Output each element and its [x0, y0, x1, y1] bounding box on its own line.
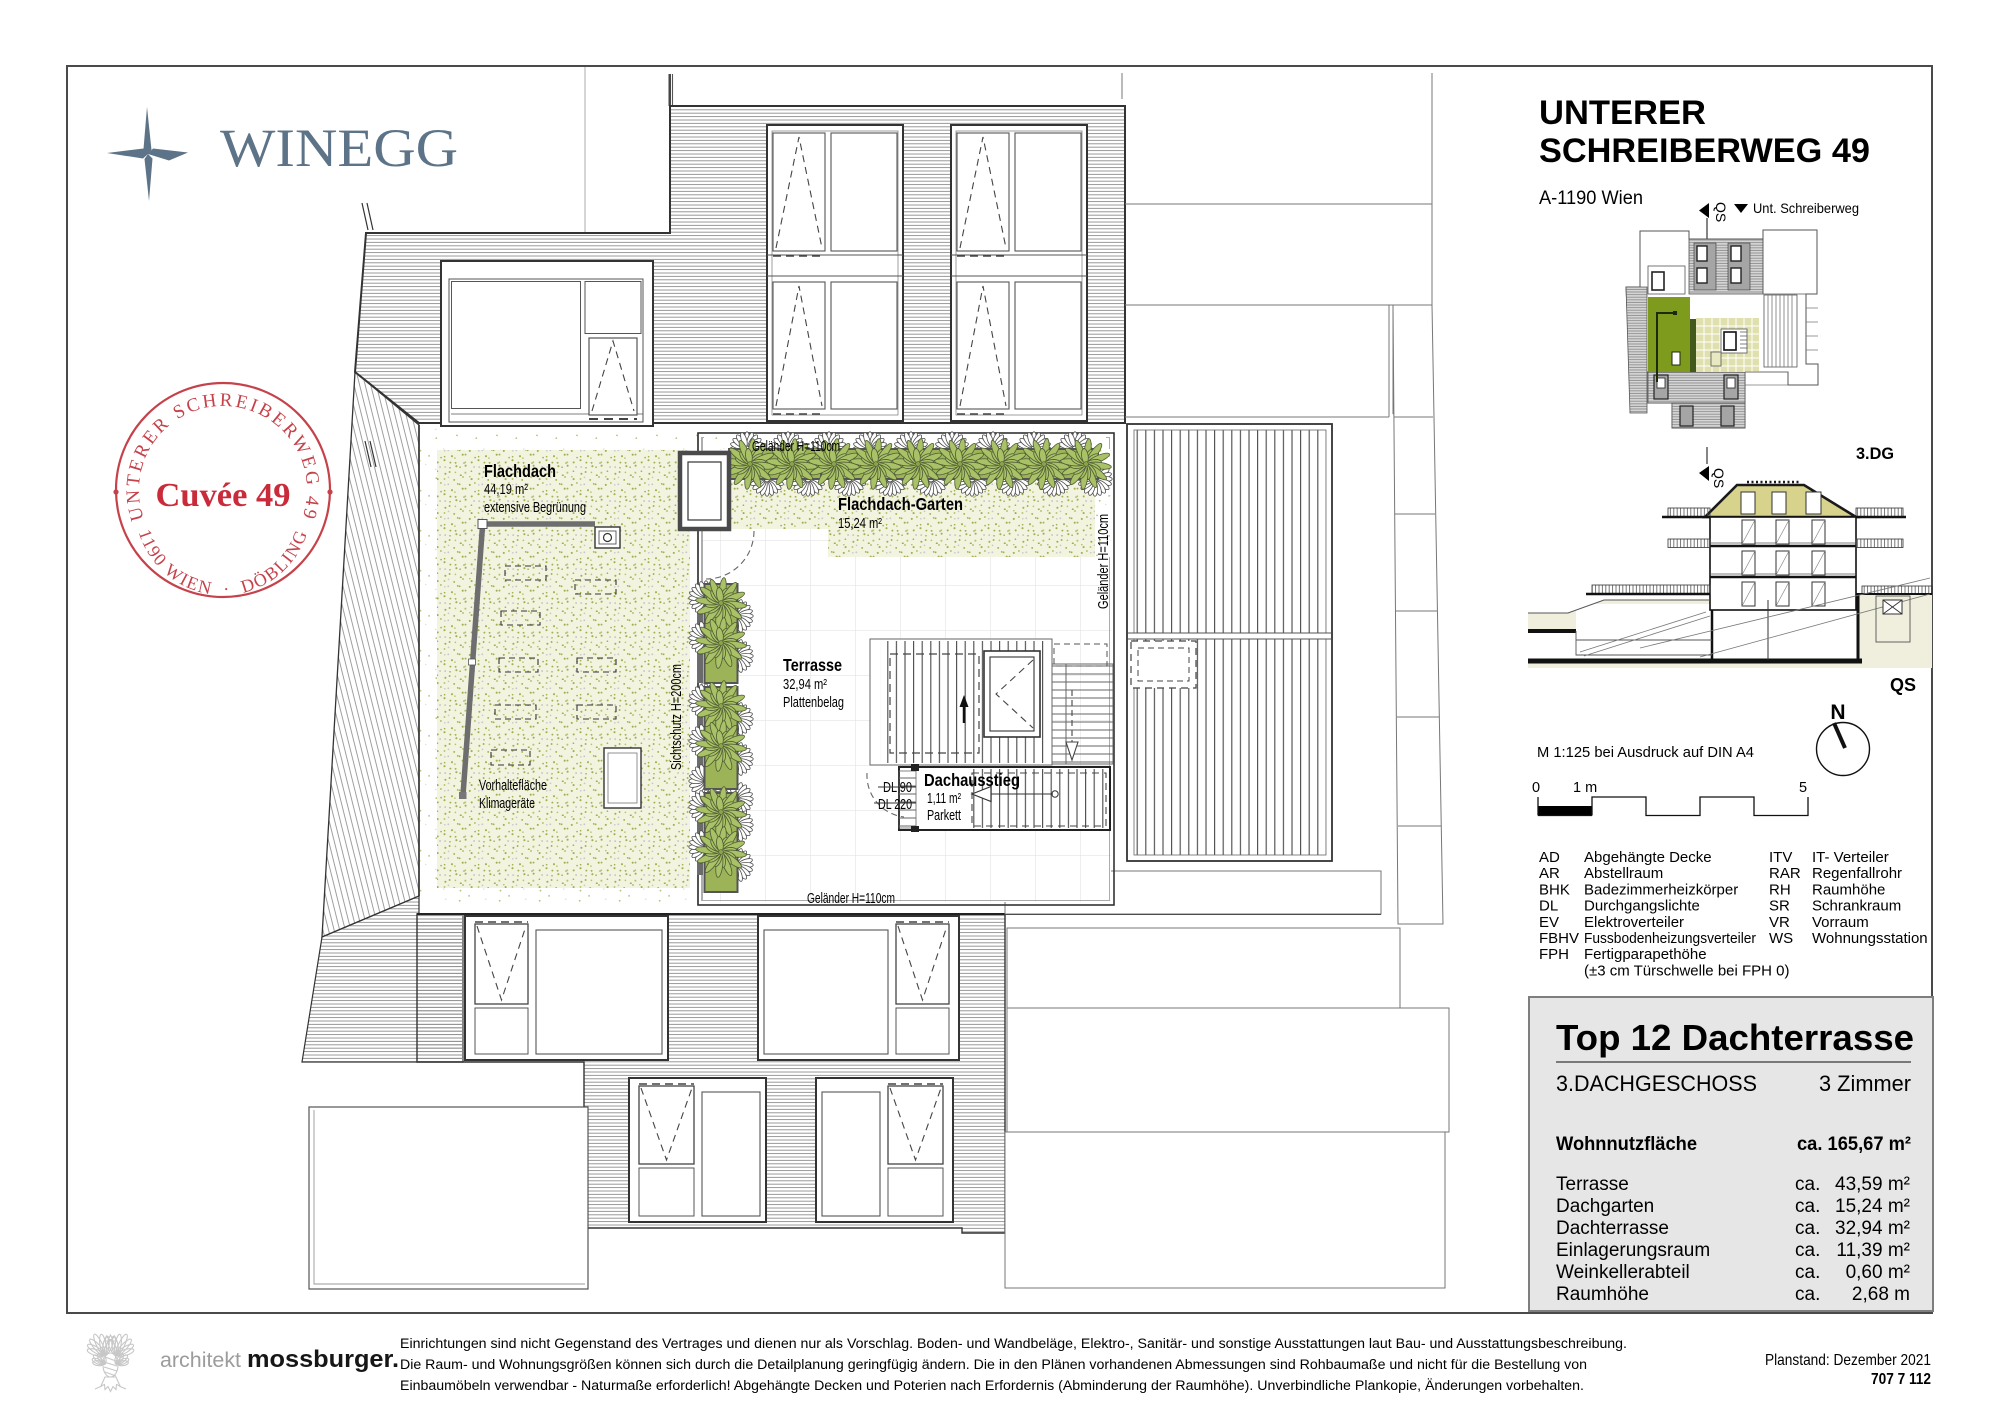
svg-text:Planstand: Dezember 2021: Planstand: Dezember 2021	[1765, 1352, 1931, 1369]
svg-text:Terrasse: Terrasse	[783, 655, 842, 675]
svg-text:Durchgangslichte: Durchgangslichte	[1584, 898, 1700, 915]
svg-text:Regenfallrohr: Regenfallrohr	[1812, 865, 1902, 882]
svg-text:Dachausstieg: Dachausstieg	[924, 770, 1020, 790]
svg-text:Schrankraum: Schrankraum	[1812, 898, 1901, 915]
svg-text:43,59 m²: 43,59 m²	[1835, 1174, 1910, 1195]
svg-text:1,11 m²: 1,11 m²	[927, 791, 961, 807]
svg-text:Fussbodenheizungsverteiler: Fussbodenheizungsverteiler	[1584, 930, 1756, 947]
svg-text:AD: AD	[1539, 849, 1560, 866]
svg-text:44,19 m²: 44,19 m²	[484, 482, 528, 498]
svg-text:mossburger.: mossburger.	[247, 1346, 399, 1373]
svg-text:SCHREIBERWEG 49: SCHREIBERWEG 49	[1539, 132, 1870, 170]
svg-text:EV: EV	[1539, 914, 1559, 931]
svg-text:BHK: BHK	[1539, 881, 1570, 898]
svg-text:QS: QS	[1890, 675, 1916, 695]
svg-text:3 Zimmer: 3 Zimmer	[1819, 1071, 1911, 1096]
svg-text:Abstellraum: Abstellraum	[1584, 865, 1663, 882]
svg-text:Sichtschutz H=200cm: Sichtschutz H=200cm	[669, 664, 685, 770]
svg-text:Flachdach: Flachdach	[484, 461, 556, 481]
svg-text:FBHV: FBHV	[1539, 930, 1579, 947]
svg-text:Top 12 Dachterrasse: Top 12 Dachterrasse	[1556, 1017, 1914, 1058]
svg-text:ca.: ca.	[1795, 1240, 1820, 1261]
svg-text:Einlagerungsraum: Einlagerungsraum	[1556, 1240, 1710, 1261]
svg-text:QS: QS	[1711, 468, 1727, 488]
svg-text:32,94 m²: 32,94 m²	[783, 677, 827, 693]
svg-text:Elektroverteiler: Elektroverteiler	[1584, 914, 1684, 931]
svg-text:UNTERER: UNTERER	[1539, 94, 1706, 132]
svg-text:SR: SR	[1769, 898, 1790, 915]
svg-text:(±3 cm Türschwelle bei FPH 0): (±3 cm Türschwelle bei FPH 0)	[1584, 962, 1790, 979]
svg-text:M 1:125 bei Ausdruck auf DIN A: M 1:125 bei Ausdruck auf DIN A4	[1537, 744, 1754, 761]
svg-text:5: 5	[1799, 780, 1807, 796]
svg-text:Weinkellerabteil: Weinkellerabteil	[1556, 1262, 1690, 1283]
svg-text:Dachgarten: Dachgarten	[1556, 1196, 1654, 1217]
svg-text:ITV: ITV	[1769, 849, 1792, 866]
svg-text:Raumhöhe: Raumhöhe	[1812, 881, 1885, 898]
svg-text:2,68 m: 2,68 m	[1852, 1284, 1910, 1305]
svg-text:ca. 165,67 m²: ca. 165,67 m²	[1797, 1134, 1911, 1155]
svg-text:0,60 m²: 0,60 m²	[1846, 1262, 1910, 1283]
svg-text:15,24 m²: 15,24 m²	[1835, 1196, 1910, 1217]
svg-text:Vorraum: Vorraum	[1812, 914, 1869, 931]
svg-text:WS: WS	[1769, 930, 1793, 947]
svg-text:Unt. Schreiberweg: Unt. Schreiberweg	[1753, 200, 1859, 216]
svg-text:Dachterrasse: Dachterrasse	[1556, 1218, 1669, 1239]
svg-text:Vorhaltefläche: Vorhaltefläche	[479, 778, 547, 794]
svg-text:IT- Verteiler: IT- Verteiler	[1812, 849, 1889, 866]
svg-text:3.DG: 3.DG	[1856, 444, 1894, 463]
svg-text:DL 220: DL 220	[878, 797, 912, 813]
svg-text:A-1190 Wien: A-1190 Wien	[1539, 188, 1643, 209]
svg-text:N: N	[1830, 701, 1845, 724]
svg-text:DL 90: DL 90	[883, 780, 912, 796]
svg-text:15,24 m²: 15,24 m²	[838, 516, 882, 532]
svg-text:RH: RH	[1769, 881, 1791, 898]
svg-text:Abgehängte Decke: Abgehängte Decke	[1584, 849, 1712, 866]
svg-text:707 7 112: 707 7 112	[1871, 1371, 1931, 1388]
svg-text:Geländer H=110cm: Geländer H=110cm	[752, 439, 840, 455]
svg-text:Klimageräte: Klimageräte	[479, 796, 535, 812]
svg-text:Geländer H=110cm: Geländer H=110cm	[1096, 514, 1112, 609]
svg-text:3.DACHGESCHOSS: 3.DACHGESCHOSS	[1556, 1071, 1757, 1096]
svg-text:Einrichtungen sind nicht Gegen: Einrichtungen sind nicht Gegenstand des …	[400, 1336, 1627, 1352]
svg-text:ca.: ca.	[1795, 1196, 1820, 1217]
svg-text:Geländer H=110cm: Geländer H=110cm	[807, 891, 895, 907]
svg-text:FPH: FPH	[1539, 946, 1569, 963]
svg-text:QS: QS	[1713, 202, 1729, 222]
svg-text:1 m: 1 m	[1573, 780, 1597, 796]
svg-text:DL: DL	[1539, 898, 1558, 915]
svg-text:Wohnnutzfläche: Wohnnutzfläche	[1556, 1134, 1697, 1155]
svg-text:Die Raum- und Wohnungsgrößen k: Die Raum- und Wohnungsgrößen können sich…	[400, 1357, 1587, 1373]
svg-text:Einbaumöbeln verwendbar - Natu: Einbaumöbeln verwendbar - Naturmaße erfo…	[400, 1377, 1584, 1394]
svg-text:ca.: ca.	[1795, 1284, 1820, 1305]
svg-text:32,94 m²: 32,94 m²	[1835, 1218, 1910, 1239]
svg-text:11,39 m²: 11,39 m²	[1836, 1240, 1910, 1261]
svg-text:ca.: ca.	[1795, 1218, 1820, 1239]
svg-text:VR: VR	[1769, 914, 1790, 931]
svg-text:Raumhöhe: Raumhöhe	[1556, 1284, 1649, 1305]
svg-text:Badezimmerheizkörper: Badezimmerheizkörper	[1584, 881, 1738, 898]
svg-text:Cuvée 49: Cuvée 49	[156, 477, 291, 514]
svg-text:Wohnungsstation: Wohnungsstation	[1812, 930, 1928, 947]
svg-text:Parkett: Parkett	[927, 808, 961, 824]
svg-text:0: 0	[1532, 780, 1540, 796]
svg-text:Flachdach-Garten: Flachdach-Garten	[838, 494, 963, 514]
svg-text:ca.: ca.	[1795, 1262, 1820, 1283]
svg-text:Fertigparapethöhe: Fertigparapethöhe	[1584, 946, 1707, 963]
svg-text:RAR: RAR	[1769, 865, 1801, 882]
svg-text:ca.: ca.	[1795, 1174, 1820, 1195]
svg-text:WINEGG: WINEGG	[220, 118, 458, 178]
svg-text:1190 WIEN · DÖBLING: 1190 WIEN · DÖBLING	[135, 526, 312, 599]
svg-text:Terrasse: Terrasse	[1556, 1174, 1629, 1195]
svg-text:AR: AR	[1539, 865, 1560, 882]
svg-text:Plattenbelag: Plattenbelag	[783, 695, 844, 711]
svg-text:extensive Begrünung: extensive Begrünung	[484, 500, 586, 516]
svg-text:architekt: architekt	[160, 1349, 241, 1372]
